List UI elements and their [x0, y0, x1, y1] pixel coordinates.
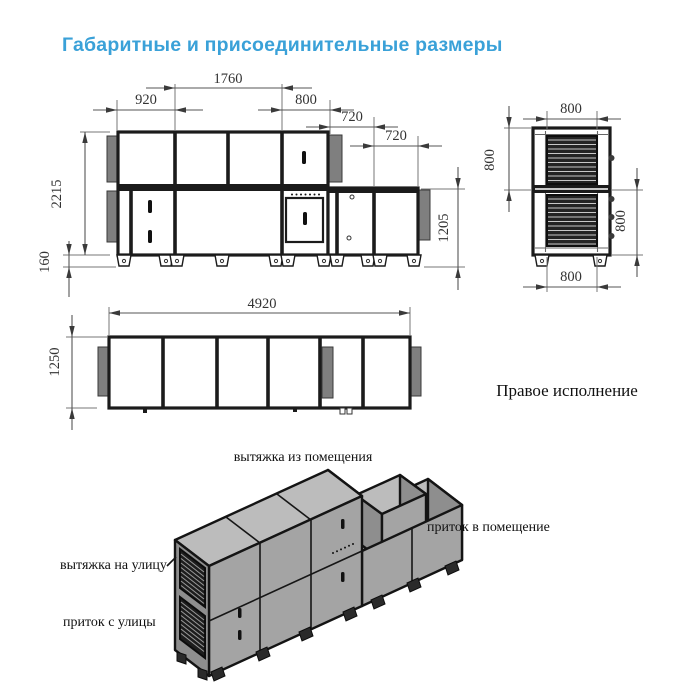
- dimension-4920: 4920: [109, 296, 410, 336]
- iso-label-supply-from-outside: приток с улицы: [63, 615, 156, 630]
- foot: [215, 255, 229, 266]
- foot: [407, 255, 421, 266]
- variant-label: Правое исполнение: [496, 381, 638, 400]
- dimension-720-lower: 720: [350, 128, 442, 187]
- dim-label-1250: 1250: [47, 348, 63, 377]
- plan-left-flange: [98, 347, 109, 396]
- iso-label-exhaust-from-room: вытяжка из помещения: [234, 450, 373, 465]
- dimension-800-side-left: 800: [482, 106, 532, 212]
- dim-label-720-upper: 720: [341, 109, 363, 125]
- isometric-drawing: [167, 470, 462, 681]
- dimension-1760: 1760: [146, 71, 312, 131]
- front-view-drawing: [107, 132, 430, 266]
- dim-label-800-front: 800: [295, 92, 317, 108]
- foot: [373, 255, 387, 266]
- dim-label-1205: 1205: [436, 214, 452, 243]
- dimension-800-front: 800: [258, 92, 354, 134]
- side-grille-upper: [547, 136, 597, 184]
- dimension-2215: 2215: [49, 132, 110, 255]
- iso-label-supply-to-room: приток в помещение: [427, 520, 550, 535]
- dim-label-2215: 2215: [49, 180, 65, 209]
- front-right-flange-lower: [418, 190, 430, 240]
- dim-label-800-side-top: 800: [560, 101, 582, 117]
- dim-label-800-side-right: 800: [613, 210, 629, 232]
- foot: [170, 255, 184, 266]
- dim-label-1760: 1760: [214, 71, 243, 87]
- door-handle: [148, 230, 152, 243]
- front-right-flange-upper: [329, 135, 342, 182]
- door-handle: [302, 151, 306, 164]
- foot: [117, 255, 131, 266]
- dim-label-800-side-bottom: 800: [560, 269, 582, 285]
- front-feet: [117, 255, 421, 266]
- foot: [330, 255, 344, 266]
- side-grille-lower: [547, 195, 597, 246]
- plan-inner-gray-block: [322, 347, 333, 398]
- dimension-800-side-right: 800: [612, 168, 643, 277]
- page: Габаритные и присоединительные размеры: [0, 0, 700, 700]
- dim-label-4920: 4920: [248, 296, 277, 312]
- plan-body: [109, 337, 410, 408]
- side-view-drawing: [533, 128, 615, 266]
- plan-view-drawing: [98, 337, 421, 414]
- technical-drawing-svg: Правое исполнение: [0, 0, 700, 700]
- door-handle: [303, 212, 307, 225]
- foot: [281, 255, 295, 266]
- plan-right-flange: [410, 347, 421, 396]
- side-feet: [535, 255, 607, 266]
- dimension-160: 160: [37, 241, 116, 297]
- door-handle: [148, 200, 152, 213]
- dim-label-800-side-left: 800: [482, 149, 498, 171]
- dim-label-920: 920: [135, 92, 157, 108]
- front-left-flange-lower: [107, 191, 118, 242]
- dimension-800-side-top: 800: [523, 101, 621, 130]
- foot: [317, 255, 331, 266]
- iso-label-exhaust-to-outside: вытяжка на улицу: [60, 558, 167, 573]
- front-left-flange-upper: [107, 136, 118, 182]
- dim-label-720-lower: 720: [385, 128, 407, 144]
- dim-label-160: 160: [37, 251, 53, 273]
- dimension-920: 920: [93, 92, 203, 131]
- foot: [593, 255, 607, 266]
